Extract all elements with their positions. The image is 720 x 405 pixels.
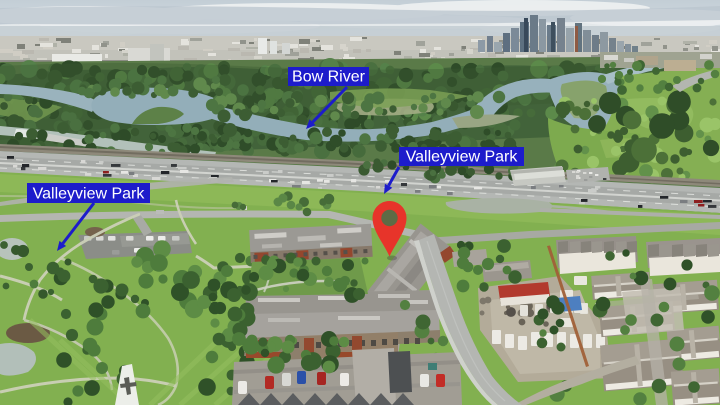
svg-text:Bow River: Bow River (292, 69, 366, 86)
svg-text:Valleyview Park: Valleyview Park (33, 186, 146, 203)
svg-text:Valleyview Park: Valleyview Park (406, 149, 519, 166)
